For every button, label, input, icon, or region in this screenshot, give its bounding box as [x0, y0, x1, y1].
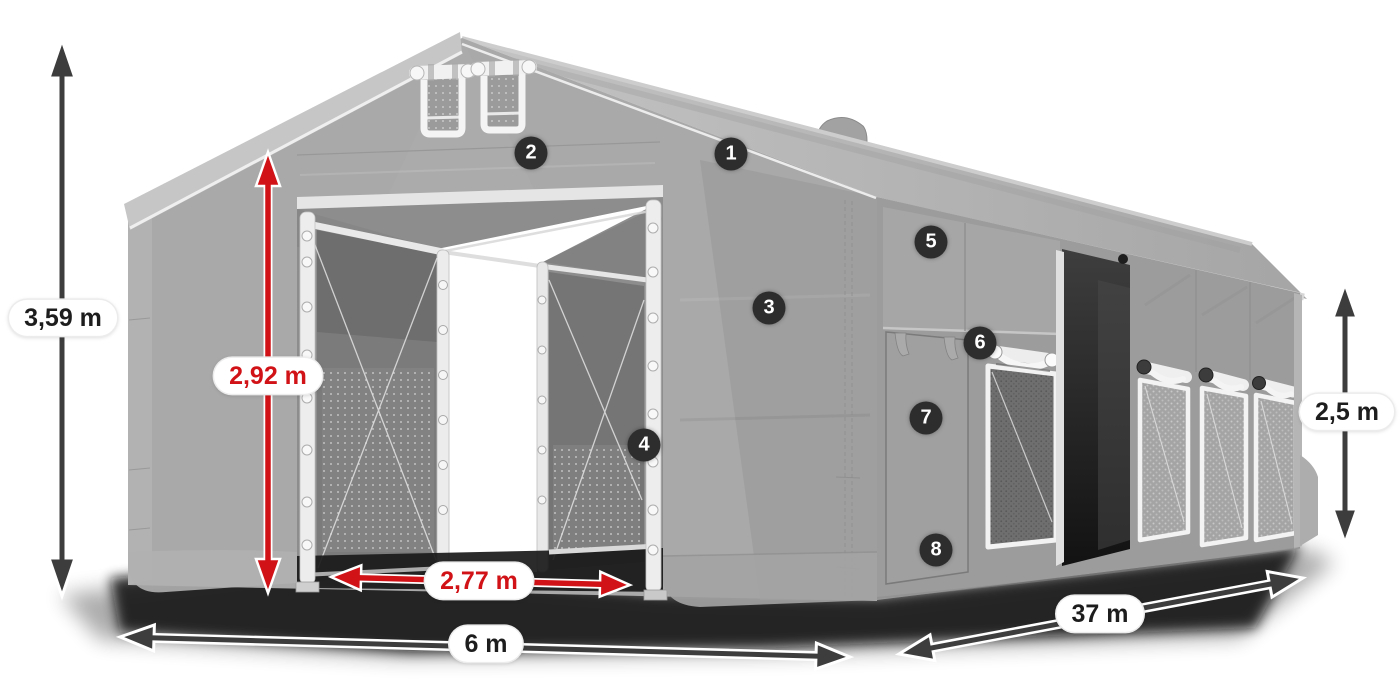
dimension-label-length: 37 m	[1057, 596, 1144, 632]
callout-badge-3: 3	[753, 292, 786, 325]
callout-badge-7: 7	[910, 402, 943, 435]
dimension-label-entrance-height: 2,92 m	[214, 358, 322, 394]
callout-badge-5: 5	[915, 226, 948, 259]
callout-badge-1: 1	[715, 138, 748, 171]
callout-badge-8: 8	[920, 534, 953, 567]
dimension-label-total-height: 3,59 m	[9, 300, 117, 336]
open-doorway	[1056, 249, 1130, 566]
side-window	[988, 345, 1059, 547]
dimension-label-side-height: 2,5 m	[1300, 394, 1394, 430]
tent-illustration	[0, 0, 1400, 700]
callout-badge-2: 2	[515, 137, 548, 170]
entrance-opening	[297, 197, 663, 592]
callout-badge-4: 4	[628, 429, 661, 462]
callout-badge-6: 6	[964, 327, 997, 360]
dimension-label-entrance-width: 2,77 m	[425, 563, 533, 599]
dimension-label-width: 6 m	[449, 626, 522, 662]
tent-dimension-diagram: 3,59 m 2,92 m 2,77 m 6 m 37 m 2,5 m 1 2 …	[0, 0, 1400, 700]
